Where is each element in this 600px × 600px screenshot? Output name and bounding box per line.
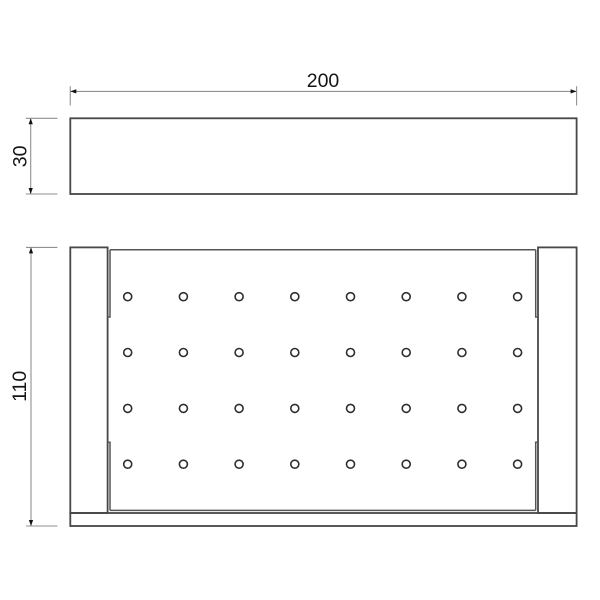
svg-text:200: 200 [307, 70, 340, 92]
svg-text:110: 110 [9, 371, 31, 402]
svg-text:30: 30 [10, 145, 32, 167]
